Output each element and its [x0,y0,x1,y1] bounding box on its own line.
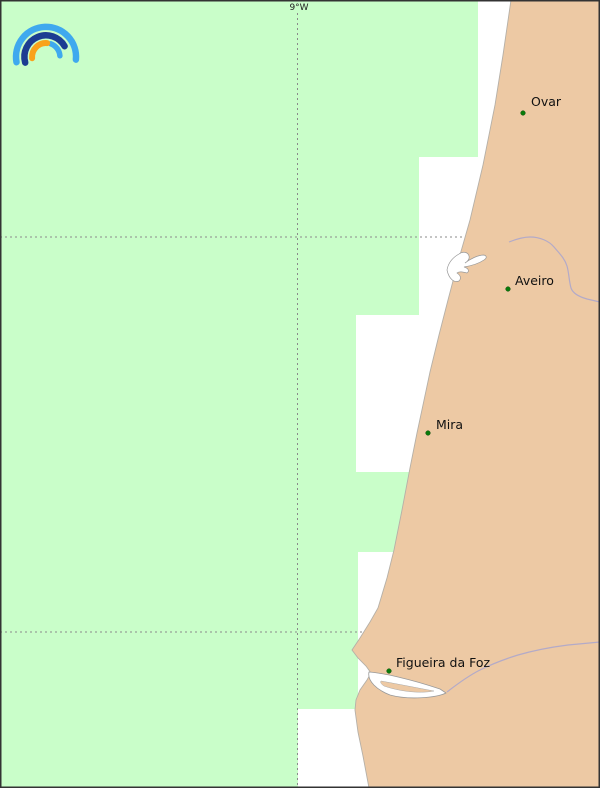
city-marker-figueira-da-foz [387,669,392,674]
map-viewport: 9°W Ovar Aveiro Mira Figueira da Foz [0,0,600,788]
city-label-ovar: Ovar [531,94,562,109]
map-canvas: 9°W Ovar Aveiro Mira Figueira da Foz [0,0,600,788]
city-marker-ovar [521,111,526,116]
city-label-mira: Mira [436,417,463,432]
city-label-figueira-da-foz: Figueira da Foz [396,655,491,670]
city-marker-mira [426,431,431,436]
city-label-aveiro: Aveiro [515,273,554,288]
meridian-label: 9°W [289,3,308,13]
city-marker-aveiro [506,287,511,292]
